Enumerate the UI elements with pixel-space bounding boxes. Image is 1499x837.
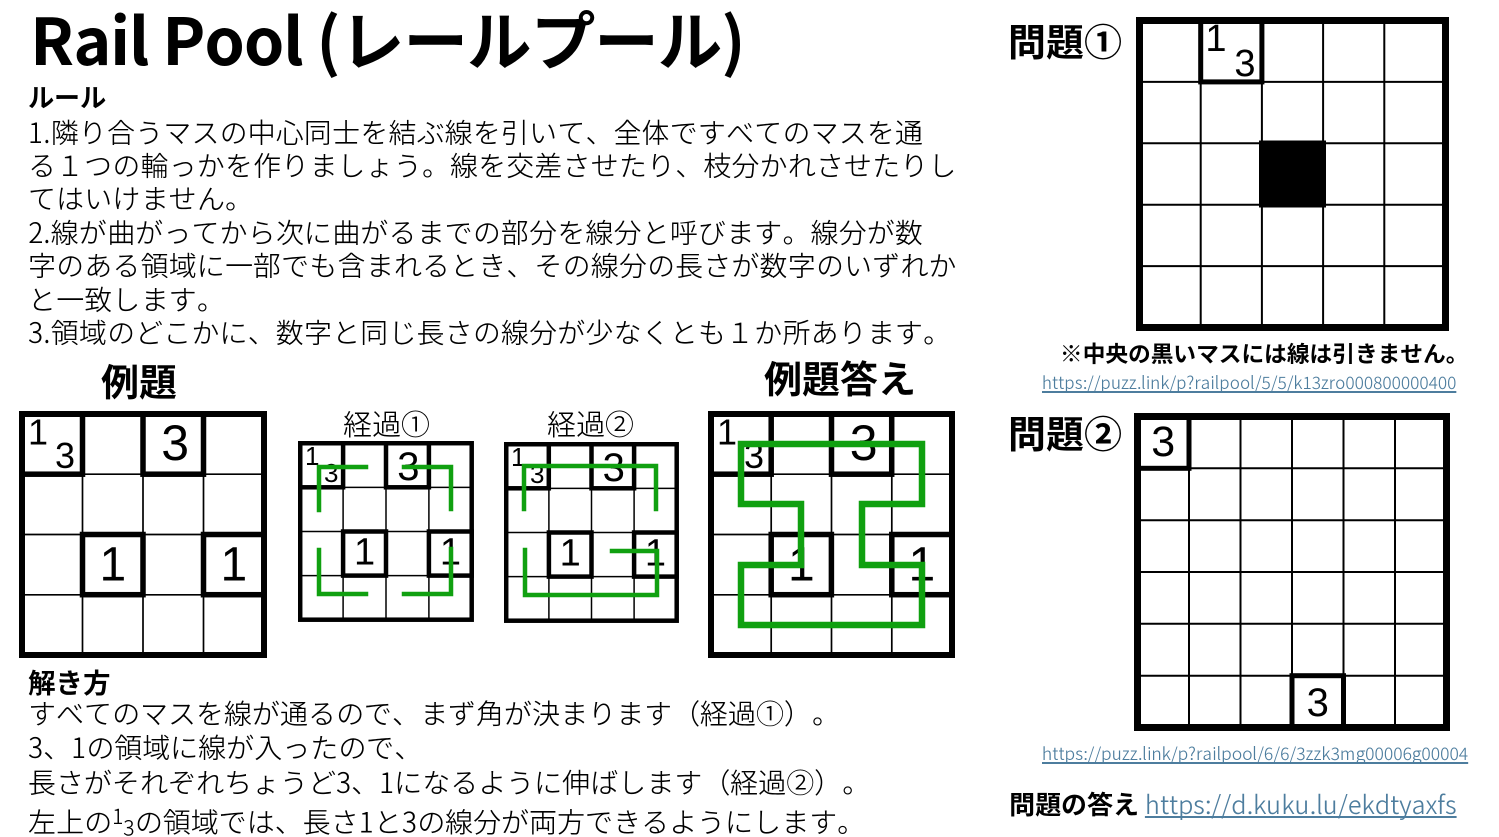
svg-text:1: 1 [560, 533, 581, 575]
svg-text:3: 3 [55, 435, 75, 476]
svg-text:3: 3 [1234, 43, 1255, 85]
svg-text:1: 1 [1205, 18, 1226, 60]
svg-text:3: 3 [1151, 418, 1175, 466]
svg-text:3: 3 [530, 459, 544, 489]
svg-text:1: 1 [99, 539, 126, 592]
svg-text:3: 3 [324, 458, 338, 488]
svg-text:3: 3 [1307, 681, 1329, 725]
svg-text:1: 1 [28, 412, 48, 453]
svg-text:1: 1 [717, 412, 737, 453]
svg-text:3: 3 [161, 415, 189, 471]
svg-text:1: 1 [220, 539, 247, 592]
svg-text:1: 1 [354, 532, 375, 574]
